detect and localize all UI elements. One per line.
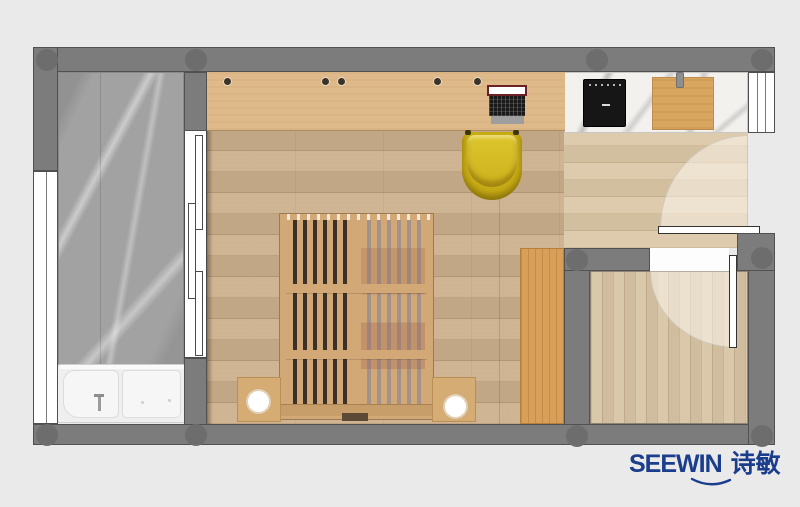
window-left <box>33 171 58 424</box>
laptop-screen <box>487 85 527 96</box>
floorplan-canvas: SEEWIN 诗敏 <box>0 0 800 507</box>
column <box>751 247 773 269</box>
bed <box>279 213 434 420</box>
tub-lid <box>122 370 181 418</box>
wall-bottom <box>33 424 775 445</box>
faucet-handle <box>94 394 104 397</box>
logo-swoosh-icon <box>689 477 733 487</box>
laptop-palmrest <box>491 116 524 124</box>
sliding-door-panel <box>195 271 203 356</box>
chair-seat <box>467 135 517 187</box>
cooktop <box>583 79 626 127</box>
bed-notch <box>342 413 368 421</box>
balcony-door-opening <box>650 248 729 271</box>
column <box>586 49 608 71</box>
desk-grommet <box>224 78 231 85</box>
logo-text-cjk: 诗敏 <box>731 452 781 477</box>
desk-grommet <box>434 78 441 85</box>
tub-rim <box>60 365 184 369</box>
marble-seam <box>100 73 101 365</box>
wardrobe <box>520 248 564 424</box>
bathroom-marble-floor <box>58 72 184 366</box>
lamp-right <box>445 396 466 417</box>
window-right <box>748 72 775 133</box>
logo-text-latin: SEEWIN <box>629 452 722 477</box>
column <box>36 424 58 446</box>
bed-crossbar <box>286 350 427 359</box>
column <box>751 49 773 71</box>
seewin-logo: SEEWIN 诗敏 <box>629 452 781 477</box>
laptop-keyboard <box>489 96 525 116</box>
tub-dot <box>168 399 171 402</box>
wall-top <box>33 47 775 72</box>
wall-balcony-left <box>564 248 590 425</box>
bed-slats-left <box>287 220 350 406</box>
chair-armrest-peg <box>513 130 519 135</box>
nightstand-right <box>432 377 476 422</box>
cabinet-handle <box>676 72 684 88</box>
desk-grommet <box>338 78 345 85</box>
wall-bathroom-divider-top <box>184 72 207 131</box>
tub-dot <box>141 401 144 404</box>
faucet-stem <box>98 396 101 411</box>
cooktop-display <box>602 104 610 106</box>
sliding-door <box>184 130 207 358</box>
nightstand-left <box>237 377 281 422</box>
wall-bathroom-divider-bottom <box>184 358 207 425</box>
column <box>185 49 207 71</box>
bed-slats-tint <box>361 220 425 406</box>
chair-armrest-peg <box>465 130 471 135</box>
bed-slats-right <box>361 220 425 406</box>
desk-grommet <box>322 78 329 85</box>
desk-grommet <box>474 78 481 85</box>
column <box>566 249 588 271</box>
column <box>751 425 773 447</box>
door-leaf-balcony <box>729 255 737 348</box>
desk-chair <box>462 132 522 200</box>
lamp-left <box>248 391 269 412</box>
bed-crossbar <box>286 284 427 293</box>
sliding-door-panel <box>195 135 203 230</box>
shower-basin <box>63 370 119 418</box>
column <box>566 425 588 447</box>
column <box>185 424 207 446</box>
column <box>36 49 58 71</box>
bathtub <box>57 364 186 423</box>
